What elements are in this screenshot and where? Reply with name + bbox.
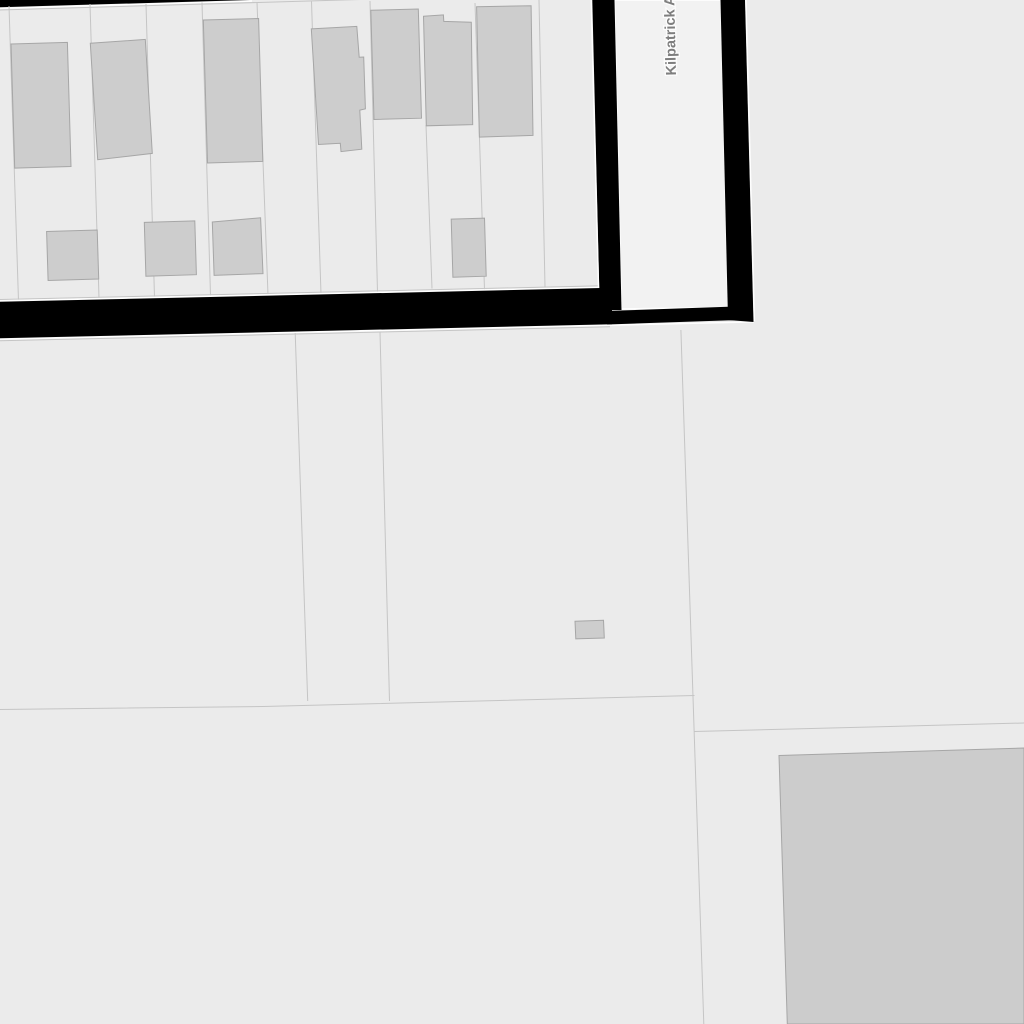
svg-text:Kilpatrick Ave: Kilpatrick Ave [662, 0, 680, 76]
